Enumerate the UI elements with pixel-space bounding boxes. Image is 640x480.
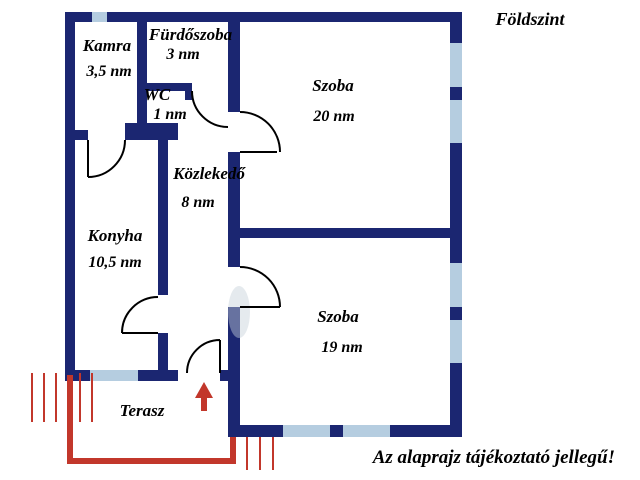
disclaimer-note: Az alaprajz tájékoztató jellegű!: [330, 448, 615, 469]
bathroom-door: [192, 91, 228, 127]
room-area-room19: 19 nm: [310, 339, 374, 357]
pantry-door: [88, 140, 125, 177]
room-area-kitchen: 10,5 nm: [78, 254, 152, 272]
room-area-bathroom: 3 nm: [150, 46, 216, 64]
room-label-wc: WC: [140, 86, 174, 105]
floor-title: Földszint: [485, 10, 575, 30]
room-area-wc: 1 nm: [147, 106, 193, 124]
kitchen-door: [122, 297, 158, 333]
room-area-hall: 8 nm: [172, 194, 224, 212]
watermark: [228, 286, 250, 338]
up-arrow-icon: [195, 382, 213, 411]
floor-plan: Földszint Kamra 3,5 nm Fürdőszoba 3 nm W…: [0, 0, 640, 480]
room-label-terrace: Terasz: [107, 402, 177, 421]
room-label-pantry: Kamra: [72, 37, 142, 56]
room-label-bathroom: Fürdőszoba: [148, 26, 233, 45]
room-label-room19: Szoba: [308, 308, 368, 327]
room-area-room20: 20 nm: [302, 108, 366, 126]
entrance-door: [187, 340, 220, 373]
room-area-pantry: 3,5 nm: [72, 63, 146, 81]
room-label-hall: Közlekedő: [166, 165, 252, 184]
room-label-room20: Szoba: [303, 77, 363, 96]
terrace-hatch-left: [32, 373, 92, 422]
room-label-kitchen: Konyha: [80, 227, 150, 246]
steps-hatch-bottom: [247, 437, 273, 470]
room20-door: [240, 112, 280, 152]
